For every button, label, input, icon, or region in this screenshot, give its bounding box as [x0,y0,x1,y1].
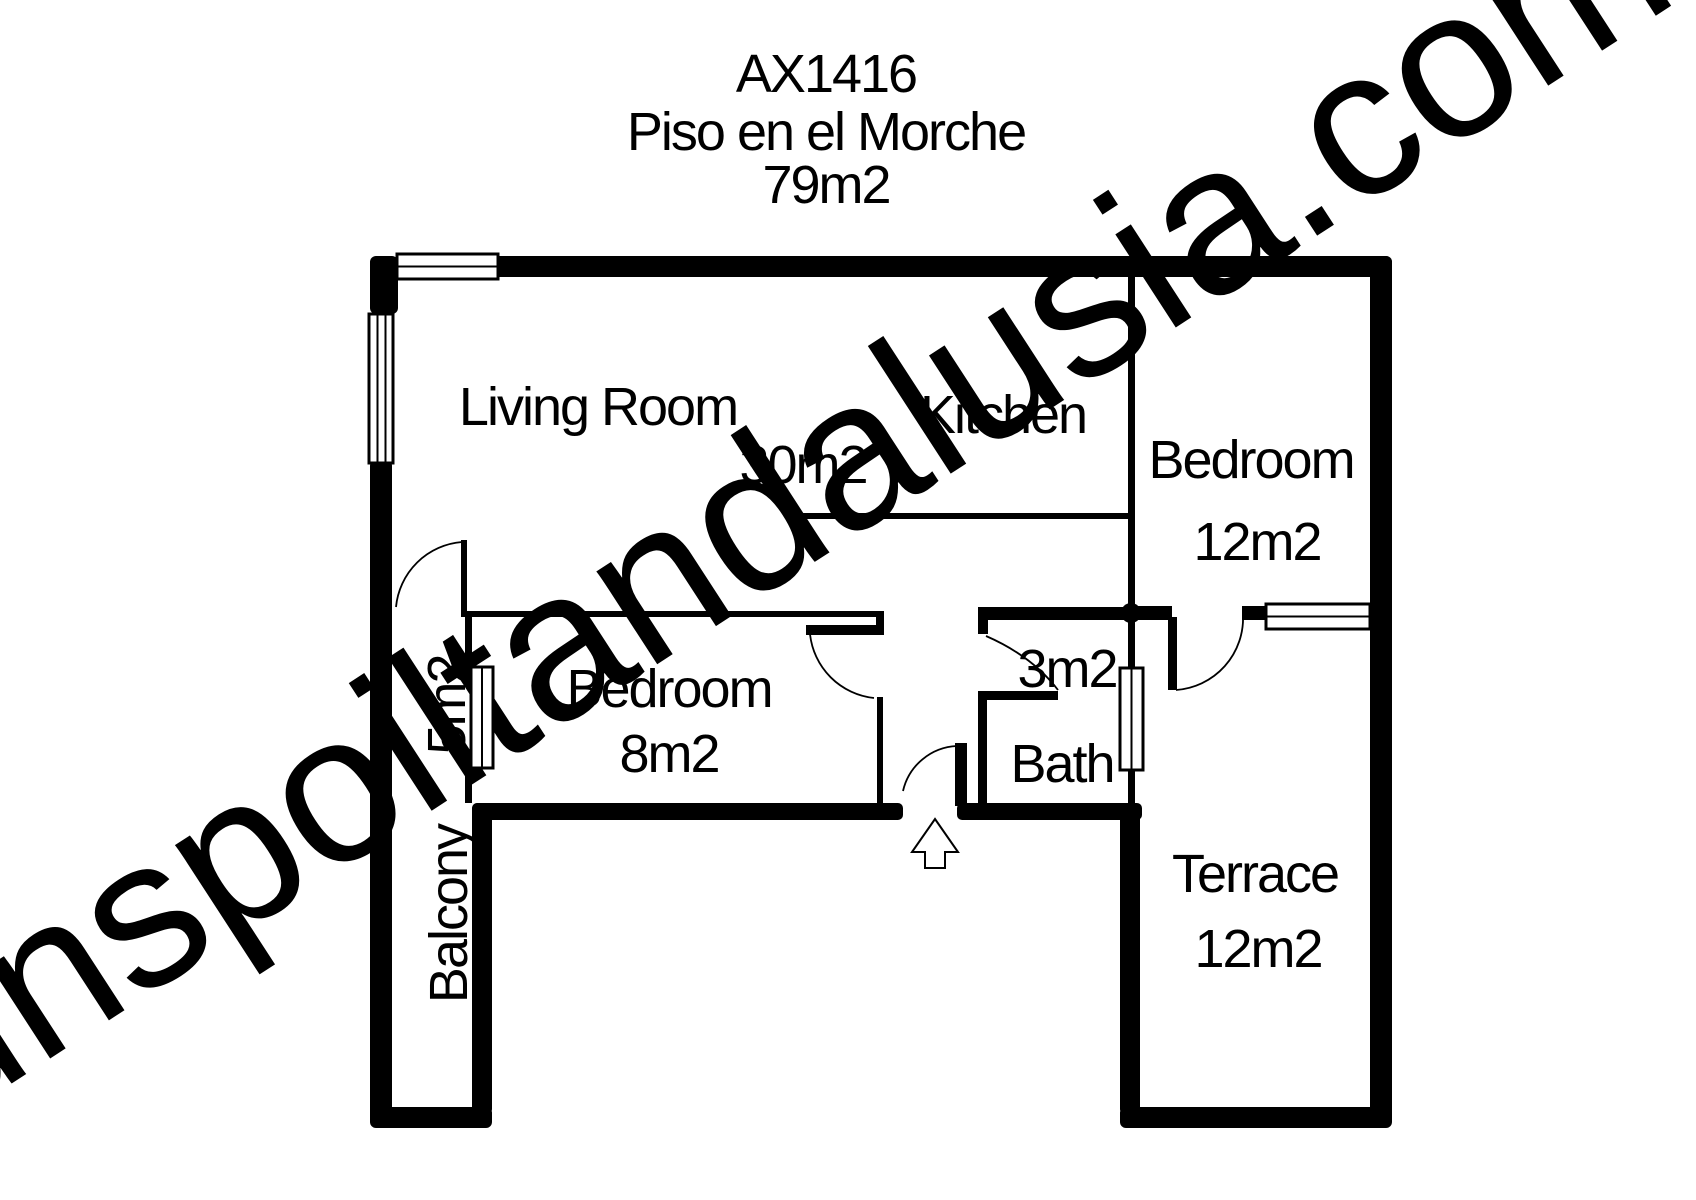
floorplan-drawing: unspoiltandalusia.com [0,0,1696,1200]
door-arc-bedroom1 [1176,615,1243,690]
wall-bottom-bath [957,803,1142,820]
room-area-terrace: 12m2 [1194,919,1321,979]
room-label-bath: Bath [1010,734,1113,794]
wall-junction-dot [1121,603,1141,623]
wall-bedroom1-bottom-seg2 [1242,606,1267,620]
title-name: Piso en el Morche [627,102,1025,162]
entrance-arrow-icon [912,819,958,868]
door-arc-bedroom2 [810,634,874,698]
wall-bottom-bedroom2 [472,803,903,820]
room-label-bedroom1: Bedroom [1148,430,1353,490]
room-area-bedroom1: 12m2 [1193,512,1320,572]
room-label-living-room: Living Room [459,377,737,437]
wall-hall-top [978,607,1130,620]
floorplan-page: unspoiltandalusia.com [0,0,1696,1200]
window-left-wall [369,314,393,463]
title-code: AX1416 [736,44,916,104]
wall-corner-top-left [370,256,398,314]
wall-bedroom2-right [877,697,883,803]
wall-bath-left [978,691,987,803]
door-leaf-bedroom2 [806,625,883,635]
wall-bath-right-lower [1128,770,1135,803]
door-arc-entrance [903,746,957,791]
wall-bedroom2-top [461,611,883,617]
room-label-balcony: Balcony [419,823,479,1003]
wall-top [490,256,1392,277]
door-leaf-bedroom1 [1168,617,1177,690]
kitchen-counter-line [803,513,1128,519]
wall-hall-door-jamb [978,607,988,634]
room-area-bedroom2: 8m2 [619,724,718,784]
door-leaf-living-room [461,540,467,614]
wall-left [370,460,392,1118]
wall-terrace-bottom [1120,1107,1392,1128]
wall-bedroom2-left-lower [465,768,472,803]
room-label-terrace: Terrace [1172,844,1338,904]
room-area-hall: 3m2 [1017,639,1116,699]
title-total-area: 79m2 [762,155,889,215]
door-leaf-entrance [955,743,967,806]
room-label-bedroom2: Bedroom [566,659,771,719]
room-area-balcony: 5m2 [417,655,477,754]
room-area-living-room: 30m2 [739,435,866,495]
room-label-kitchen: Kitchen [920,385,1086,445]
wall-terrace-left [1120,803,1140,1115]
wall-right [1370,256,1392,1118]
